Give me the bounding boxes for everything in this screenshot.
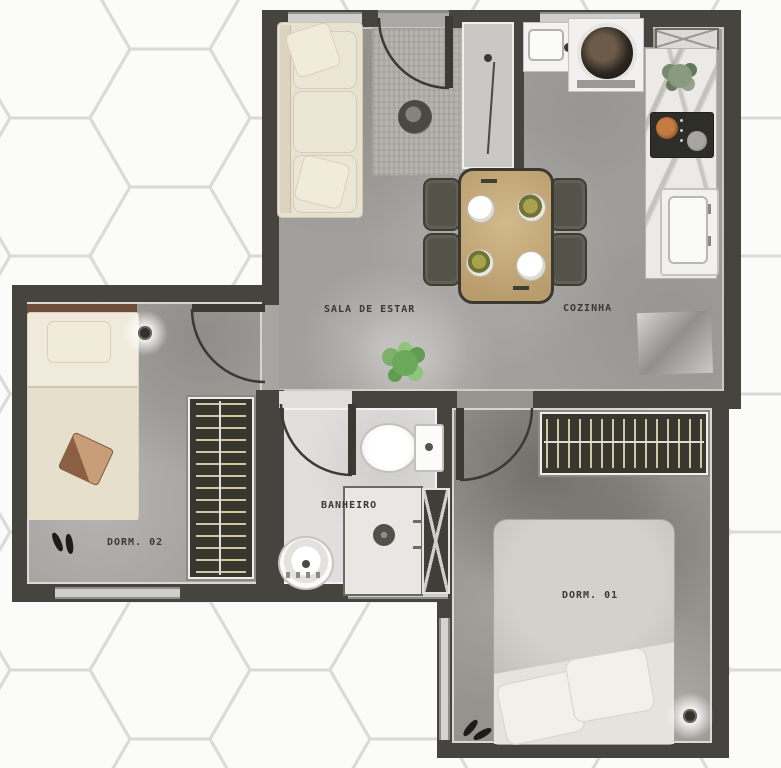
- dining-chair: [423, 233, 461, 286]
- flush-button: [425, 443, 433, 451]
- wardrobe-rod: [544, 441, 704, 443]
- bathroom-door-opening: [279, 391, 352, 408]
- knob-icon: [680, 139, 683, 142]
- dorm01-double-bed: [493, 519, 675, 745]
- label-banheiro: BANHEIRO: [321, 500, 377, 511]
- knob-icon: [680, 119, 683, 122]
- fridge: [660, 188, 719, 276]
- wardrobe-hangers: [546, 419, 702, 468]
- label-dorm-02: DORM. 02: [107, 537, 163, 548]
- toilet-tank: [414, 424, 444, 472]
- wall-dorm02-left: [12, 285, 27, 602]
- dorm02-wardrobe: [188, 397, 254, 579]
- fridge-handle: [708, 204, 711, 214]
- dining-table: [458, 168, 554, 304]
- floor-lamp-icon: [484, 54, 492, 62]
- plate: [467, 195, 495, 223]
- kitchen-sink-basin: [528, 29, 564, 61]
- dorm01-door-opening: [457, 391, 533, 408]
- wall-kitchen-right: [724, 10, 741, 409]
- knob-icon: [680, 129, 683, 132]
- ceiling-light-icon: [138, 326, 152, 340]
- sink-drain-dot: [302, 560, 310, 568]
- sofa: [277, 22, 363, 218]
- dining-chair: [423, 178, 461, 231]
- floor-lamp-pole: [487, 62, 495, 154]
- dorm02-pillow: [47, 321, 111, 363]
- wardrobe-hangers: [196, 403, 246, 573]
- wall-dorm01-right: [712, 400, 729, 758]
- dorm02-single-bed: [27, 312, 139, 519]
- wall-dorm02-top: [12, 285, 262, 302]
- toilet-bowl: [360, 423, 418, 473]
- plant: [392, 350, 418, 376]
- window-dorm01-left: [439, 618, 450, 740]
- cutlery-icon: [481, 179, 497, 183]
- entry-door-opening: [378, 10, 449, 27]
- dorm02-door-opening: [262, 305, 279, 390]
- wardrobe-rod: [219, 401, 221, 575]
- pan-icon: [687, 131, 707, 151]
- fridge-inner: [668, 196, 708, 264]
- cooktop: [650, 112, 714, 158]
- vent-hatch: [655, 28, 719, 50]
- label-cozinha: COZINHA: [563, 303, 612, 314]
- side-table: [398, 100, 432, 134]
- label-sala-de-estar: SALA DE ESTAR: [324, 304, 415, 315]
- dining-chair: [549, 233, 587, 286]
- bathroom-pedestal-sink: [278, 536, 334, 590]
- sink-tile-dots: [286, 572, 322, 578]
- sofa-cushion: [293, 91, 357, 153]
- dining-chair: [549, 178, 587, 231]
- floor-plan-image: SALA DE ESTAR COZINHA DORM. 02 BANHEIRO …: [0, 0, 781, 768]
- duct-shaft: [422, 488, 450, 594]
- label-dorm-01: DORM. 01: [562, 590, 618, 601]
- ceiling-light-icon: [683, 709, 697, 723]
- washing-machine: [568, 18, 644, 92]
- kitchen-mat: [637, 311, 713, 376]
- entry-mirror-cabinet: [462, 22, 514, 169]
- plate: [516, 251, 546, 281]
- shower-drain: [373, 524, 395, 546]
- plate-with-food: [466, 249, 494, 277]
- fridge-handle: [708, 236, 711, 246]
- dorm01-wardrobe: [540, 412, 708, 475]
- window-dorm02-bottom: [55, 587, 180, 599]
- washer-base: [577, 80, 635, 88]
- counter-plant: [668, 64, 692, 88]
- cutlery-icon: [513, 286, 529, 290]
- pan-icon: [656, 117, 678, 139]
- washer-drum: [577, 23, 637, 83]
- plate-with-food: [517, 193, 546, 222]
- wall-dorm01-bottom: [437, 743, 729, 758]
